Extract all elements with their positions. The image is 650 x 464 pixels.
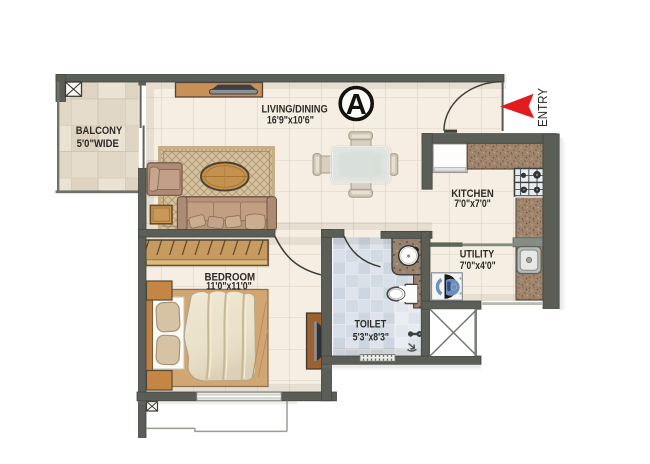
svg-text:UTILITY: UTILITY <box>460 248 495 260</box>
svg-text:11'0"x11'0": 11'0"x11'0" <box>206 281 252 293</box>
svg-text:5'3"x8'3": 5'3"x8'3" <box>353 332 389 344</box>
svg-text:5'0"WIDE: 5'0"WIDE <box>77 138 120 150</box>
svg-text:16'9"x10'6": 16'9"x10'6" <box>267 115 314 127</box>
svg-text:BALCONY: BALCONY <box>76 125 123 137</box>
svg-text:7'0"x7'0": 7'0"x7'0" <box>454 198 491 210</box>
svg-text:A: A <box>346 89 367 121</box>
svg-text:ENTRY: ENTRY <box>535 88 550 127</box>
svg-text:TOILET: TOILET <box>355 318 387 330</box>
svg-text:7'0"x4'0": 7'0"x4'0" <box>460 260 496 272</box>
